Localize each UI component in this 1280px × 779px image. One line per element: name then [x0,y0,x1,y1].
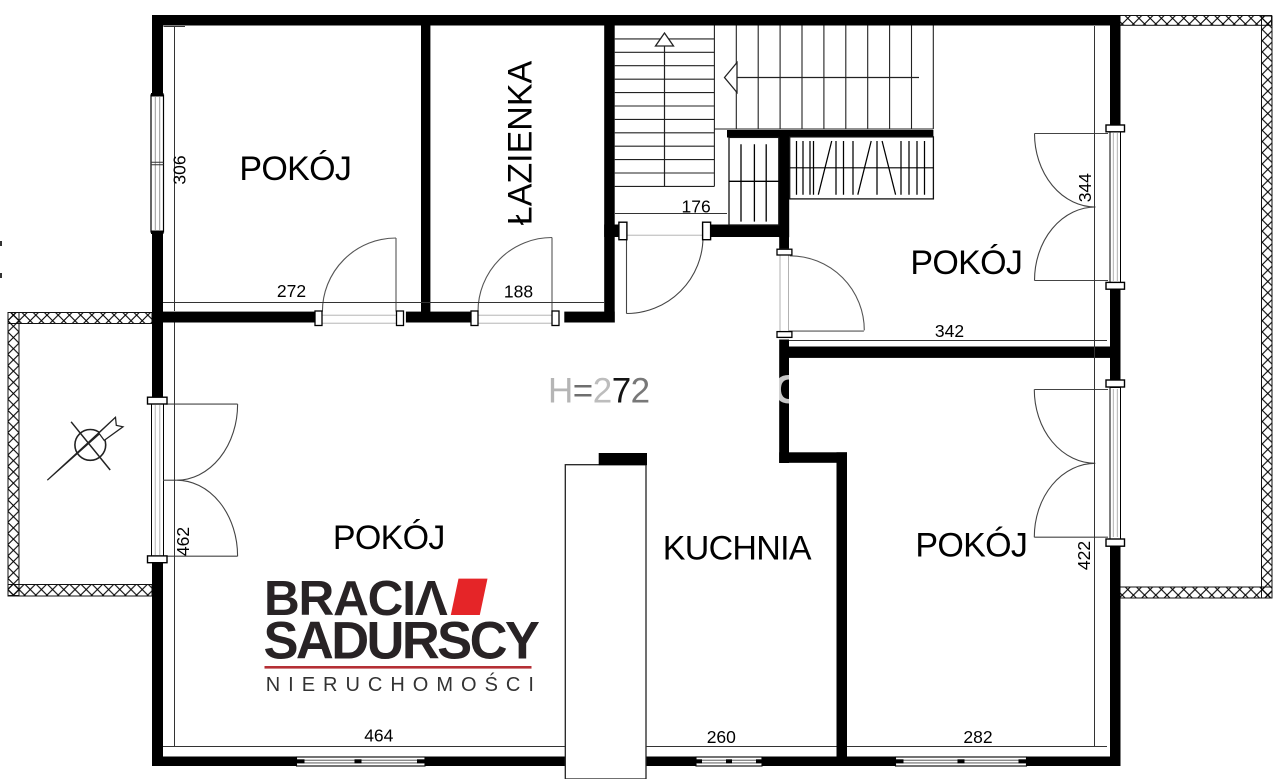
svg-text:260: 260 [707,727,736,747]
svg-text:176: 176 [681,196,710,216]
svg-text:NIERUCHOMOŚCI: NIERUCHOMOŚCI [266,672,542,696]
svg-text:306: 306 [170,155,190,184]
svg-text:SADURSCY: SADURSCY [264,612,540,671]
svg-text:ŁAZIENKA: ŁAZIENKA [501,60,539,225]
svg-text:POKÓJ: POKÓJ [239,150,351,188]
svg-text:422: 422 [1074,541,1094,570]
svg-text:464: 464 [364,725,393,745]
svg-text:POKÓJ: POKÓJ [333,519,445,557]
svg-text:344: 344 [1075,173,1095,202]
svg-text:C: C [774,368,803,412]
svg-text:342: 342 [935,321,964,341]
svg-text:H=272: H=272 [548,371,650,410]
svg-text:272: 272 [277,281,306,301]
svg-text:462: 462 [173,527,193,556]
svg-text:188: 188 [504,282,533,302]
svg-text:KUCHNIA: KUCHNIA [663,529,812,567]
svg-text:POKÓJ: POKÓJ [910,244,1022,282]
svg-text:282: 282 [963,727,992,747]
svg-text:POKÓJ: POKÓJ [915,527,1027,565]
